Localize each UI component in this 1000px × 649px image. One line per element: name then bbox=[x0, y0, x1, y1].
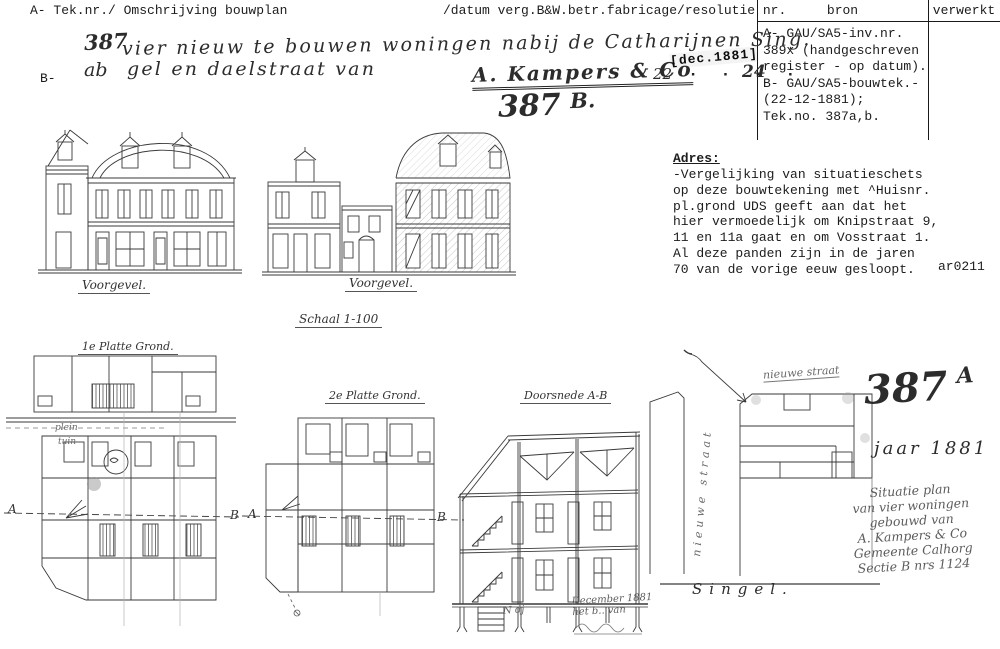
sheet-suffix: B. bbox=[570, 87, 596, 113]
plan1-section-marker-b: B bbox=[230, 508, 239, 522]
plan1-drawing bbox=[4, 350, 239, 628]
adres-title: Adres: bbox=[673, 151, 720, 167]
plan1-note-plein: plein bbox=[55, 423, 78, 433]
adres-body: -Vergelijking van situatieschets op deze… bbox=[673, 167, 938, 278]
table-col-bron: bron bbox=[757, 3, 928, 19]
facade-right-label: Voorgevel. bbox=[345, 276, 417, 292]
facade-right-drawing bbox=[260, 120, 520, 290]
table-header-rule bbox=[757, 21, 1000, 22]
new-street-arrow bbox=[684, 350, 746, 402]
site-year-label: jaar 1881 bbox=[874, 438, 988, 459]
sheet-number-387b: 387 B. bbox=[497, 86, 595, 124]
section-signature-squiggle bbox=[572, 618, 652, 638]
plan2-section-marker-b: B bbox=[437, 510, 446, 524]
header-left: A- Tek.nr./ Omschrijving bouwplan bbox=[30, 3, 287, 19]
plan2-drawing bbox=[242, 404, 464, 616]
scanned-bouwplan-document: A- Tek.nr./ Omschrijving bouwplan /datum… bbox=[0, 0, 1000, 649]
plan2-label: 2e Platte Grond. bbox=[325, 389, 425, 404]
archive-code: ar0211 bbox=[938, 259, 985, 275]
hw-description-line2: gel en daelstraat van bbox=[127, 58, 376, 80]
hw-date-left: 22 bbox=[653, 65, 672, 83]
hw-date-right: 24 bbox=[742, 62, 766, 82]
plan1-section-marker-a: A bbox=[8, 502, 17, 516]
hw-line2-prefix: ab bbox=[84, 59, 108, 81]
site-number-387a: 387 A bbox=[863, 361, 975, 414]
scale-label: Schaal 1-100 bbox=[295, 312, 382, 328]
facade-left-drawing bbox=[36, 120, 246, 288]
site-singel-label: Singel. bbox=[692, 580, 794, 598]
b-label: B- bbox=[40, 71, 56, 87]
header-middle: /datum verg.B&W.betr.fabricage/resolutie… bbox=[443, 3, 786, 19]
plan1-note-tuin: tuin bbox=[58, 437, 76, 447]
site-number: 387 bbox=[863, 363, 949, 414]
plan2-section-marker-a: A bbox=[248, 507, 257, 521]
table-col-verwerkt: verwerkt bbox=[928, 3, 1000, 19]
section-small-mark: N dj bbox=[503, 604, 525, 616]
site-number-suffix: A bbox=[956, 362, 974, 389]
facade-left-label: Voorgevel. bbox=[78, 278, 150, 294]
site-note-block: Situatie plan van vier woningen gebouwd … bbox=[840, 479, 985, 576]
